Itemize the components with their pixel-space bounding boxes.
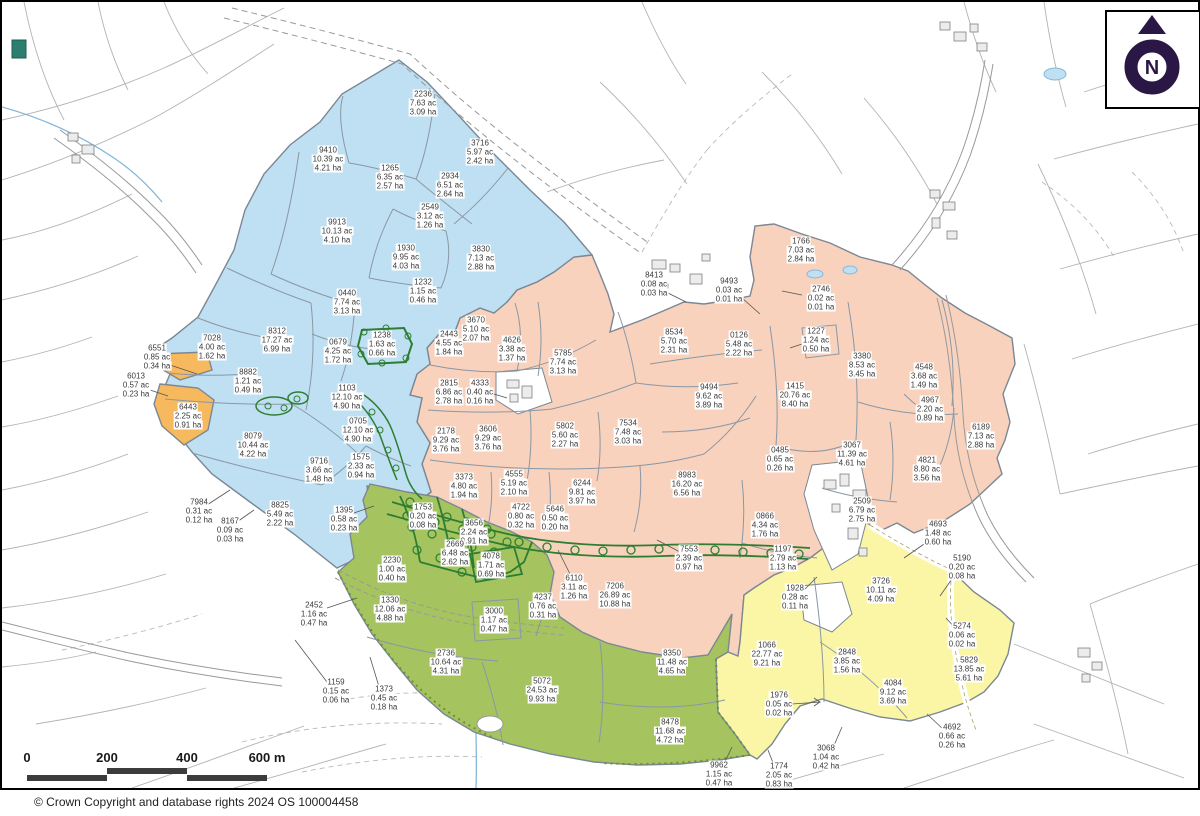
north-arrow-icon: N bbox=[1107, 12, 1199, 107]
scale-bar-segment bbox=[187, 775, 267, 781]
copyright-text: © Crown Copyright and database rights 20… bbox=[34, 795, 358, 809]
basemap-svg bbox=[2, 2, 1198, 788]
scale-tick: 400 bbox=[176, 750, 198, 765]
parcel-regions bbox=[154, 60, 1015, 765]
scale-tick: 0 bbox=[23, 750, 30, 765]
north-letter: N bbox=[1145, 57, 1159, 79]
scale-tick: 600 m bbox=[249, 750, 286, 765]
scale-bar-segment bbox=[27, 775, 107, 781]
map-canvas: 22367.63 ac3.09 ha37165.97 ac2.42 ha9410… bbox=[0, 0, 1200, 790]
access-land-marker bbox=[12, 40, 26, 58]
pond-outline bbox=[477, 716, 503, 732]
scale-bar: 0200400600 m bbox=[27, 750, 307, 786]
map-page: 22367.63 ac3.09 ha37165.97 ac2.42 ha9410… bbox=[0, 0, 1200, 816]
north-arrow-box: N bbox=[1105, 10, 1200, 109]
scale-bar-segment bbox=[107, 768, 187, 774]
scale-tick: 200 bbox=[96, 750, 118, 765]
ponds bbox=[807, 68, 1066, 278]
